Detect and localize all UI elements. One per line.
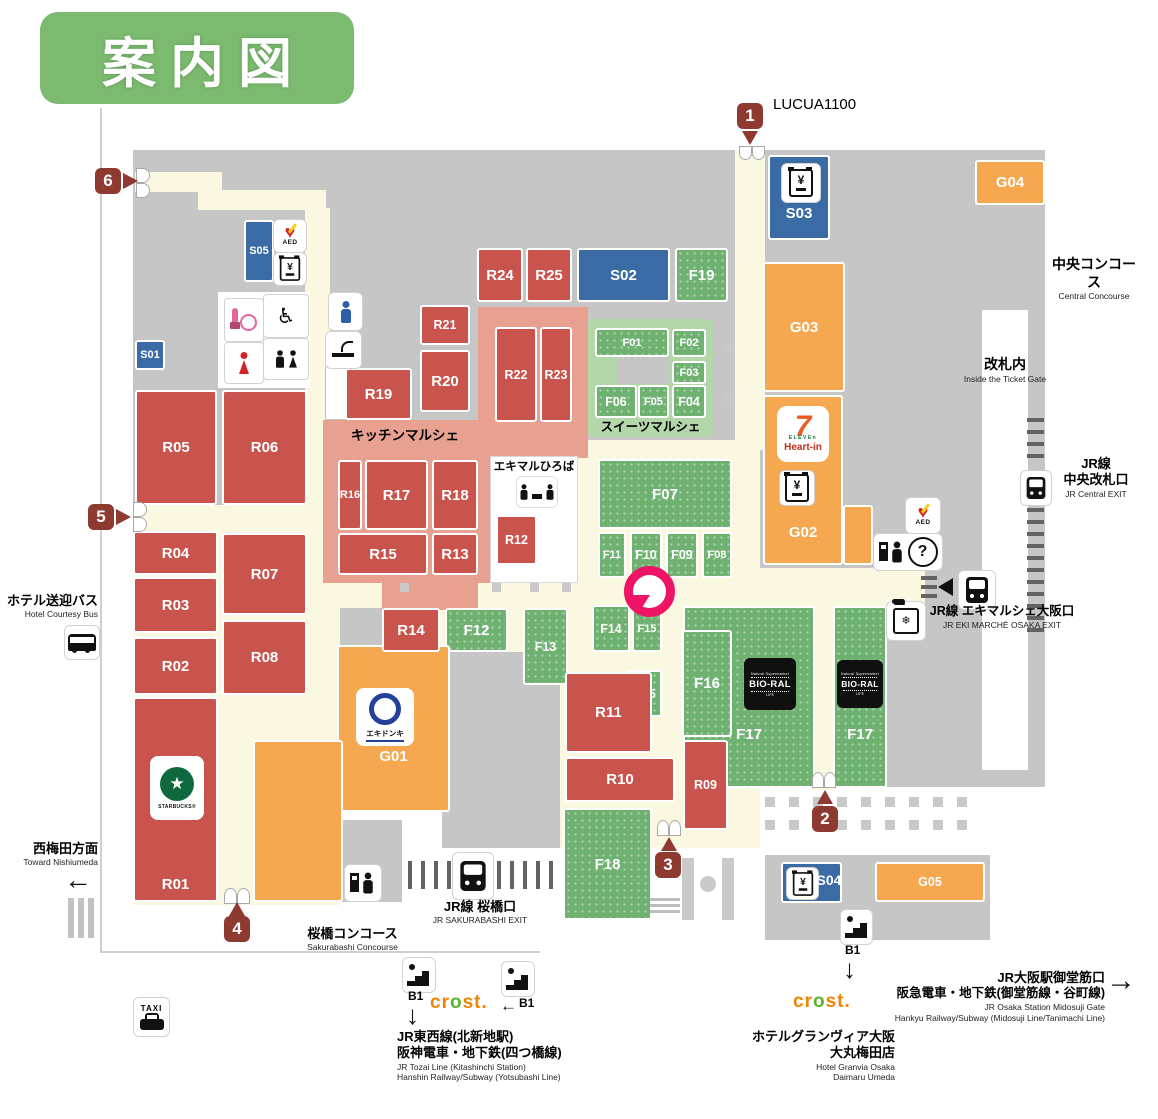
store-F03[interactable]: F03	[672, 361, 706, 384]
store-R20[interactable]: R20	[420, 350, 470, 412]
store-F02[interactable]: F02	[672, 329, 706, 357]
ticket-gate-bar	[447, 861, 451, 889]
store-S02[interactable]: S02	[577, 248, 670, 302]
store-F05[interactable]: F05	[638, 385, 669, 418]
pillar-dot	[724, 344, 733, 353]
store-R22[interactable]: R22	[495, 327, 537, 422]
ticket-gate-bar	[1027, 508, 1044, 512]
pillar-dot	[933, 797, 943, 807]
ticket-gate-bar	[921, 594, 937, 598]
arrow-left-icon	[500, 997, 517, 1014]
store-R16[interactable]: R16	[338, 460, 362, 530]
ticket-gate-bar	[497, 861, 501, 889]
pillar-dot	[837, 820, 847, 830]
ticket-gate-bar	[921, 585, 937, 589]
entrance-arrow-6	[123, 173, 138, 189]
store-label-g01: G01	[337, 748, 450, 767]
pillar-dot	[933, 820, 943, 830]
store-R13[interactable]: R13	[432, 533, 478, 575]
store-label-s04: S04	[816, 872, 842, 890]
crosswalk-bar	[68, 898, 74, 938]
entrance-marker-3[interactable]: 3	[655, 852, 681, 878]
location-pin-tail	[630, 595, 650, 611]
page-title: 案内図	[40, 12, 354, 104]
pillar-dot	[530, 583, 539, 592]
store-R10[interactable]: R10	[565, 757, 675, 802]
pillar-dot	[492, 583, 501, 592]
stairs-icon	[402, 957, 436, 993]
central-concourse-label: 中央コンコース Central Concourse	[1046, 256, 1142, 302]
ticket-gate-bar	[921, 576, 937, 580]
kitchen-marche-label: キッチンマルシェ	[350, 428, 460, 445]
store-R04[interactable]: R04	[133, 531, 218, 575]
pillar-dot	[837, 797, 847, 807]
store-label-s03: S03	[768, 205, 830, 224]
store-g02b[interactable]	[843, 505, 873, 565]
seven-eleven-logo: 7 ELEVEn Heart-in	[777, 406, 829, 462]
jr-central-exit-label: JR線 中央改札口 JR Central EXIT	[1048, 456, 1144, 499]
store-R05[interactable]: R05	[135, 390, 217, 505]
store-F08[interactable]: F08	[702, 532, 732, 578]
store-R23[interactable]: R23	[540, 327, 572, 422]
walkway-entrance1	[735, 150, 765, 450]
starbucks-logo: STARBUCKS®	[150, 756, 204, 820]
kitchen-marche-area-c	[382, 583, 478, 610]
store-F09[interactable]: F09	[666, 532, 698, 578]
entrance-door-2	[812, 772, 836, 788]
stair-structure	[722, 858, 734, 920]
atm-icon: ¥	[273, 252, 307, 286]
ekidonki-circle-icon	[369, 693, 401, 725]
ticket-gate-bar	[1027, 418, 1044, 422]
entrance-door-6	[136, 168, 150, 198]
granvia-label: ホテルグランヴィア大阪 大丸梅田店 Hotel Granvia Osaka Da…	[740, 1029, 895, 1083]
ekimaru-hiroba-label: エキマルひろば	[490, 460, 578, 474]
ticket-gate-bar	[510, 861, 514, 889]
ticket-gate-bar	[536, 861, 540, 889]
taxi-icon: TAXI	[133, 997, 170, 1037]
store-F06[interactable]: F06	[595, 385, 637, 418]
ticket-gate-bar	[549, 861, 553, 889]
stair-structure	[682, 858, 694, 920]
store-G03[interactable]: G03	[763, 262, 845, 392]
bus-icon	[64, 625, 100, 660]
arrow-down-icon	[406, 1002, 419, 1028]
arrow-left-icon	[938, 578, 953, 596]
question-info-icon: ?	[908, 537, 938, 567]
sweets-marche-notch	[617, 357, 669, 384]
store-R17[interactable]: R17	[365, 460, 428, 530]
entrance-door-3	[657, 820, 681, 836]
bioral-logo: Natural Supermarket BIO-RAL LIFE	[744, 658, 796, 710]
womens-toilet-icon	[224, 342, 264, 384]
tozai-label: JR東西線(北新地駅) 阪神電車・地下鉄(四つ橋線) JR Tozai Line…	[397, 1029, 562, 1083]
ticket-gate-bar	[1027, 430, 1044, 434]
crosswalk-bar	[88, 898, 94, 938]
smoking-room-icon	[325, 331, 362, 369]
store-R14[interactable]: R14	[382, 608, 440, 652]
store-R09[interactable]: R09	[683, 740, 728, 830]
starbucks-siren-icon	[160, 767, 194, 801]
ticket-machine-icon	[879, 539, 905, 565]
hotel-bus-label: ホテル送迎バス Hotel Courtesy Bus	[5, 593, 98, 620]
store-unlabeled	[325, 366, 347, 420]
stairs-icon	[840, 909, 873, 945]
ticket-machine-icon	[344, 864, 382, 902]
crost-logo: crost.	[793, 991, 851, 1013]
lucua-label: LUCUA1100	[773, 96, 856, 115]
entrance-marker-1[interactable]: 1	[737, 103, 763, 129]
map-boundary-left	[100, 108, 102, 953]
store-F16[interactable]: F16	[682, 630, 732, 737]
ticket-gate-bar	[1027, 454, 1044, 458]
pillar-dot	[909, 820, 919, 830]
entrance-arrow-5	[116, 509, 131, 525]
store-F12[interactable]: F12	[445, 608, 508, 652]
pillar-dot	[957, 797, 967, 807]
ticket-gate-bar	[523, 861, 527, 889]
b1-label: B1	[519, 996, 534, 1011]
ticket-gate-bar	[1027, 592, 1044, 596]
arrow-right-icon	[1106, 966, 1136, 996]
entrance-arrow-1	[742, 131, 758, 145]
aed-icon: AED	[273, 219, 307, 253]
entrance-arrow-2	[817, 790, 833, 804]
store-F04[interactable]: F04	[672, 385, 706, 418]
pillar-dot	[789, 797, 799, 807]
inside-gate-label: 改札内 Inside the Ticket Gate	[955, 356, 1055, 384]
sakurabashi-exit-label: JR線 桜橋口 JR SAKURABASHI EXIT	[420, 899, 540, 926]
ticket-gate-bar	[1027, 520, 1044, 524]
entrance-marker-2[interactable]: 2	[812, 806, 838, 832]
pillar-dot	[724, 393, 733, 402]
store-F18[interactable]: F18	[563, 808, 652, 920]
pillar-dot	[909, 797, 919, 807]
store-F19[interactable]: F19	[675, 248, 728, 302]
midosuji-label: JR大阪駅御堂筋口 阪急電車・地下鉄(御堂筋線・谷町線) JR Osaka St…	[880, 970, 1105, 1023]
aed-icon: AED	[905, 497, 941, 534]
wheelchair-icon: ♿	[263, 294, 309, 338]
store-R08[interactable]: R08	[222, 620, 307, 695]
coin-locker-icon	[886, 601, 926, 641]
store-R15[interactable]: R15	[338, 533, 428, 575]
store-R19[interactable]: R19	[345, 368, 412, 420]
store-label-f17b: F17	[833, 726, 887, 745]
powder-room-icon	[224, 298, 264, 342]
stairs-icon	[501, 961, 535, 997]
ticket-gate-bar	[1027, 556, 1044, 560]
store-R21[interactable]: R21	[420, 305, 470, 345]
ekidonki-logo: エキドンキ	[356, 688, 414, 746]
store-label-r01: R01	[133, 876, 218, 895]
entrance-marker-6[interactable]: 6	[95, 168, 121, 194]
store-F13[interactable]: F13	[523, 608, 568, 685]
store-R12[interactable]: R12	[496, 515, 537, 565]
ticket-gate-bar	[1027, 442, 1044, 446]
pillar-dot	[562, 583, 571, 592]
atm-icon: ¥	[781, 163, 821, 203]
family-toilet-icon	[263, 338, 309, 380]
floor-patch	[340, 608, 382, 648]
train-icon	[1020, 470, 1052, 506]
entrance-marker-5[interactable]: 5	[88, 504, 114, 530]
rail	[650, 910, 680, 913]
rest-space-icon	[516, 476, 558, 508]
store-S01[interactable]: S01	[135, 340, 165, 370]
pillar-dot	[885, 820, 895, 830]
entrance-arrow-3	[661, 837, 677, 851]
store-G04[interactable]: G04	[975, 160, 1045, 205]
walkway-entrance6-b	[198, 190, 326, 210]
information-icons: ?	[873, 533, 943, 571]
store-R03[interactable]: R03	[133, 577, 218, 633]
store-label-g02: G02	[763, 524, 843, 543]
store-F11[interactable]: F11	[598, 532, 626, 578]
store-R06[interactable]: R06	[222, 390, 307, 505]
store-R07[interactable]: R07	[222, 533, 307, 615]
crosswalk-bar	[78, 898, 84, 938]
station-guide-map: F16F19F01F02F03F04F05F06F07F08F09F10F11F…	[0, 0, 1158, 1119]
store-g01b[interactable]	[253, 740, 343, 902]
pillar-dot	[885, 797, 895, 807]
store-label-f17a: F17	[683, 726, 815, 745]
mens-toilet-icon	[328, 292, 363, 331]
sakurabashi-concourse-label: 桜橋コンコース Sakurabashi Concourse	[295, 926, 410, 953]
atm-icon: ¥	[786, 867, 819, 900]
ticket-gate-bar	[408, 861, 412, 889]
pillar-dot	[861, 820, 871, 830]
store-R25[interactable]: R25	[526, 248, 572, 302]
arrow-left-icon	[64, 866, 92, 894]
crost-logo: crost.	[430, 992, 488, 1014]
pillar-dot	[765, 820, 775, 830]
store-R18[interactable]: R18	[432, 460, 478, 530]
entrance-arrow-4	[229, 902, 245, 916]
rail	[650, 904, 680, 907]
store-R11[interactable]: R11	[565, 672, 652, 753]
sweets-marche-label: スイーツマルシェ	[588, 420, 713, 436]
pillar-dot	[400, 583, 409, 592]
pillar-dot	[861, 797, 871, 807]
store-S05[interactable]: S05	[244, 220, 274, 282]
store-G05[interactable]: G05	[875, 862, 985, 902]
ticket-gate-bar	[1027, 568, 1044, 572]
store-F07[interactable]: F07	[598, 459, 732, 529]
entrance-marker-4[interactable]: 4	[224, 916, 250, 942]
ticket-gate-bar	[1027, 532, 1044, 536]
pillar-dot	[957, 820, 967, 830]
pillar-dot	[765, 797, 775, 807]
train-icon	[452, 852, 494, 900]
bioral-logo: Natural Supermarket BIO-RAL LIFE	[837, 660, 883, 708]
ticket-gate-bar	[1027, 580, 1044, 584]
arrow-down-icon	[843, 956, 856, 982]
pillar-circle	[700, 876, 716, 892]
rail	[650, 898, 680, 901]
store-F14[interactable]: F14	[592, 605, 630, 652]
pillar-dot	[789, 820, 799, 830]
ticket-gate-bar	[421, 861, 425, 889]
entrance-door-5	[133, 502, 147, 532]
entrance-door-1	[739, 146, 765, 160]
store-R02[interactable]: R02	[133, 637, 218, 695]
store-R24[interactable]: R24	[477, 248, 523, 302]
ticket-gate-bar	[434, 861, 438, 889]
store-F01[interactable]: F01	[595, 328, 669, 357]
atm-icon: ¥	[779, 470, 815, 506]
ticket-gate-bar	[1027, 544, 1044, 548]
ekimarche-exit-label: JR線 エキマルシェ大阪口 JR EKI MARCHÉ OSAKA EXIT	[922, 604, 1082, 630]
